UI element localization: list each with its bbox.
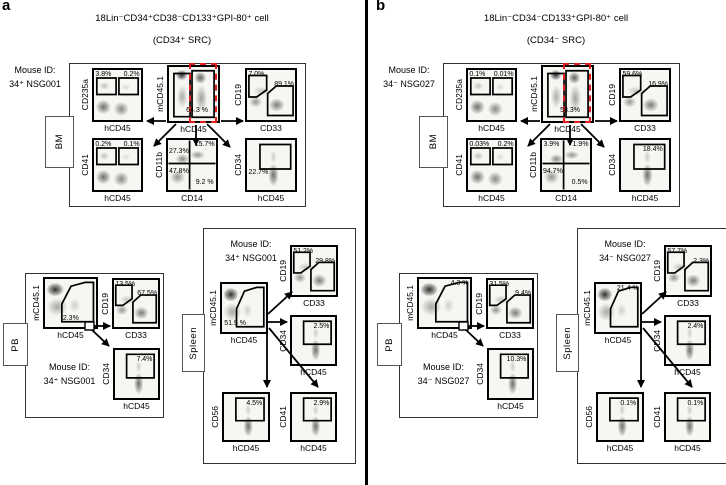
gate bbox=[436, 282, 468, 321]
x-axis-label: hCD45 bbox=[216, 443, 276, 453]
y-axis-label-text: mCD45.1 bbox=[31, 285, 41, 321]
percent-label: 7.4% bbox=[136, 356, 152, 363]
mouse-id-pb: Mouse ID:34⁺ NSG001 bbox=[31, 361, 108, 388]
y-axis-label-text: CD34 bbox=[607, 154, 617, 176]
percent-label: 58.3% bbox=[560, 107, 580, 114]
bm-section-tab: BM bbox=[419, 116, 448, 168]
figure: a18Lin⁻CD34⁺CD38⁻CD133⁺GPI-80⁺ cell(CD34… bbox=[0, 0, 726, 485]
percent-label: 9.2 % bbox=[196, 179, 214, 186]
percent-label: 15.7% bbox=[195, 141, 215, 148]
percent-label: 0.1% bbox=[124, 141, 140, 148]
percent-label: 0.1% bbox=[620, 400, 636, 407]
percent-label: 94.7% bbox=[543, 168, 563, 175]
gate-outlines bbox=[247, 140, 295, 190]
flow-plot-cd34-vs-hcd45: 18.4% bbox=[619, 138, 671, 192]
percent-label: 29.8% bbox=[315, 258, 335, 265]
flow-plot-mcd451-vs-hcd45: 58.3% bbox=[541, 65, 594, 123]
y-axis-label-text: CD11b bbox=[528, 152, 538, 178]
gate bbox=[97, 148, 116, 165]
flow-plot-cd11b-vs-cd14: 27.3%15.7%47.8%9.2 % bbox=[166, 138, 218, 192]
x-axis-label: hCD45 bbox=[658, 443, 717, 453]
percent-label: 10.3% bbox=[507, 356, 527, 363]
y-axis-label-text: CD235a bbox=[80, 79, 90, 110]
x-axis-label: hCD45 bbox=[284, 443, 343, 453]
percent-label: 0.01% bbox=[494, 71, 514, 78]
gate bbox=[642, 86, 667, 116]
percent-label: 0.2% bbox=[498, 141, 514, 148]
mouse-id-bm: Mouse ID:34⁻ NSG027 bbox=[376, 64, 442, 91]
y-axis-label: CD56 bbox=[582, 392, 595, 442]
y-axis-label-text: CD41 bbox=[80, 154, 90, 176]
percent-label: 27.3% bbox=[169, 148, 189, 155]
gate bbox=[249, 76, 267, 98]
x-axis-label: hCD45 bbox=[37, 330, 104, 340]
y-axis-label-text: CD19 bbox=[607, 84, 617, 106]
x-axis-label: hCD45 bbox=[460, 123, 523, 133]
percent-label: 67.5% bbox=[137, 290, 157, 297]
flow-plot-mcd451-vs-hcd45: 64.3 % bbox=[167, 65, 220, 123]
x-axis-label: hCD45 bbox=[535, 124, 600, 134]
gate bbox=[623, 76, 641, 98]
flow-plot-cd19-vs-cd33: 51.2%29.8% bbox=[290, 245, 338, 297]
y-axis-label: CD41 bbox=[78, 138, 91, 192]
y-axis-label-text: mCD45.1 bbox=[529, 76, 539, 112]
x-axis-label: hCD45 bbox=[588, 335, 648, 345]
gate bbox=[490, 285, 506, 305]
y-axis-label-text: CD34 bbox=[278, 330, 288, 352]
panel-b: b18Lin⁻CD34⁻CD133⁺GPI-80⁺ cell(CD34⁻ SRC… bbox=[374, 0, 726, 485]
flow-plot-cd34-vs-hcd45: 2.4% bbox=[664, 315, 711, 366]
x-axis-label: hCD45 bbox=[107, 401, 166, 411]
x-axis-label: CD33 bbox=[480, 330, 540, 340]
mouse-id-caption: Mouse ID: bbox=[2, 64, 68, 78]
y-axis-label: mCD45.1 bbox=[206, 282, 219, 334]
x-axis-label: hCD45 bbox=[481, 401, 540, 411]
flow-plot-cd41-vs-hcd45: 0.03%0.2% bbox=[466, 138, 517, 192]
percent-label: 0.03% bbox=[469, 141, 489, 148]
flow-plot-cd19-vs-cd33: 59.6%16.9% bbox=[619, 68, 671, 122]
percent-label: 2.3% bbox=[63, 315, 79, 322]
mouse-id-caption: Mouse ID: bbox=[31, 361, 108, 375]
mouse-id-caption: Mouse ID: bbox=[376, 64, 442, 78]
gate bbox=[507, 295, 530, 323]
x-axis-label: CD33 bbox=[613, 123, 677, 133]
percent-label: 59.6% bbox=[622, 71, 642, 78]
gate bbox=[119, 148, 138, 165]
percent-label: 64.3 % bbox=[186, 107, 208, 114]
percent-label: 2.5% bbox=[313, 323, 329, 330]
flow-plot-mcd451-vs-hcd45: 51.9 % bbox=[220, 282, 268, 334]
y-axis-label: mCD45.1 bbox=[580, 282, 593, 334]
percent-label: 4.5% bbox=[246, 400, 262, 407]
y-axis-label-text: CD41 bbox=[278, 406, 288, 428]
percent-label: 7.0% bbox=[248, 71, 264, 78]
flow-plot-cd19-vs-cd33: 57.7%2.3% bbox=[664, 245, 712, 297]
gate bbox=[97, 78, 116, 95]
gate bbox=[471, 148, 490, 165]
x-axis-label: hCD45 bbox=[613, 193, 677, 203]
percent-label: 47.8% bbox=[169, 168, 189, 175]
y-axis-label: CD41 bbox=[650, 392, 663, 442]
y-axis-label-text: CD34 bbox=[652, 330, 662, 352]
percent-label: 0.5% bbox=[572, 179, 588, 186]
flow-plot-mcd451-vs-hcd45: 21.4 % bbox=[594, 282, 642, 334]
red-dashed-gate bbox=[189, 63, 217, 123]
y-axis-label: CD19 bbox=[472, 278, 485, 329]
percent-label: 31.5% bbox=[489, 281, 509, 288]
panel-title: 18Lin⁻CD34⁻CD133⁺GPI-80⁺ cell bbox=[386, 13, 726, 24]
y-axis-label: mCD45.1 bbox=[403, 277, 416, 329]
gate bbox=[260, 145, 291, 170]
section-label: Spleen bbox=[562, 327, 573, 360]
x-axis-label: CD33 bbox=[284, 298, 344, 308]
gate bbox=[493, 148, 512, 165]
flow-plot-cd235a-vs-hcd45: 3.8%0.2% bbox=[92, 68, 143, 122]
percent-label: 0.2% bbox=[95, 141, 111, 148]
mouse-id-caption: Mouse ID: bbox=[586, 238, 664, 252]
y-axis-label-text: mCD45.1 bbox=[208, 290, 218, 326]
panel-subtitle: (CD34⁻ SRC) bbox=[386, 35, 726, 46]
flow-plot-mcd451-vs-hcd45: 4.3 % bbox=[417, 277, 472, 329]
pb-section-tab: PB bbox=[3, 323, 28, 366]
mouse-id-value: 34⁻ NSG027 bbox=[405, 375, 482, 389]
flow-plot-cd19-vs-cd33: 13.5%67.5% bbox=[112, 278, 160, 329]
gate bbox=[668, 252, 684, 273]
flow-plot-cd34-vs-hcd45: 10.3% bbox=[487, 348, 534, 400]
flow-plot-cd34-vs-hcd45: 22.7% bbox=[245, 138, 297, 192]
gate bbox=[493, 78, 512, 95]
gate bbox=[311, 262, 334, 290]
y-axis-label: CD235a bbox=[78, 68, 91, 122]
spleen-section-tab: Spleen bbox=[182, 314, 205, 372]
x-axis-label: hCD45 bbox=[590, 443, 650, 453]
flow-plot-cd235a-vs-hcd45: 0.1%0.01% bbox=[466, 68, 517, 122]
x-axis-label: CD33 bbox=[239, 123, 303, 133]
section-label: BM bbox=[54, 134, 65, 149]
flow-plot-cd11b-vs-cd14: 3.9%1.9%94.7%0.5% bbox=[540, 138, 592, 192]
flow-plot-cd56-vs-hcd45: 0.1% bbox=[596, 392, 644, 442]
x-axis-label: hCD45 bbox=[284, 367, 343, 377]
y-axis-label: CD56 bbox=[208, 392, 221, 442]
mouse-id-value: 34⁻ NSG027 bbox=[586, 252, 664, 266]
y-axis-label-text: CD41 bbox=[652, 406, 662, 428]
mouse-id-value: 34⁺ NSG001 bbox=[31, 375, 108, 389]
percent-label: 18.4% bbox=[643, 146, 663, 153]
y-axis-label: CD41 bbox=[452, 138, 465, 192]
mouse-id-bm: Mouse ID:34⁺ NSG001 bbox=[2, 64, 68, 91]
mouse-id-pb: Mouse ID:34⁻ NSG027 bbox=[405, 361, 482, 388]
y-axis-label: CD235a bbox=[452, 68, 465, 122]
percent-label: 2.9% bbox=[313, 400, 329, 407]
panel-letter: b bbox=[376, 0, 385, 14]
percent-label: 2.3% bbox=[693, 258, 709, 265]
x-axis-label: hCD45 bbox=[214, 335, 274, 345]
flow-plot-cd34-vs-hcd45: 2.5% bbox=[290, 315, 337, 366]
section-label: PB bbox=[10, 338, 21, 352]
y-axis-label-text: mCD45.1 bbox=[582, 290, 592, 326]
y-axis-label: CD41 bbox=[276, 392, 289, 442]
gate bbox=[119, 78, 138, 95]
percent-label: 0.2% bbox=[124, 71, 140, 78]
flow-plot-cd19-vs-cd33: 7.0%89.1% bbox=[245, 68, 297, 122]
panel-subtitle: (CD34⁺ SRC) bbox=[12, 35, 352, 46]
x-axis-label: hCD45 bbox=[658, 367, 717, 377]
section-label: BM bbox=[428, 134, 439, 149]
percent-label: 3.8% bbox=[95, 71, 111, 78]
percent-label: 89.1% bbox=[274, 81, 294, 88]
percent-label: 1.9% bbox=[573, 141, 589, 148]
flow-plot-cd41-vs-hcd45: 0.2%0.1% bbox=[92, 138, 143, 192]
flow-plot-cd34-vs-hcd45: 7.4% bbox=[113, 348, 160, 400]
x-axis-label: hCD45 bbox=[460, 193, 523, 203]
percent-label: 13.5% bbox=[115, 281, 135, 288]
y-axis-label-text: CD56 bbox=[210, 406, 220, 428]
flow-plot-cd19-vs-cd33: 31.5%9.4% bbox=[486, 278, 534, 329]
y-axis-label-text: mCD45.1 bbox=[155, 76, 165, 112]
y-axis-label-text: CD41 bbox=[454, 154, 464, 176]
percent-label: 16.9% bbox=[648, 81, 668, 88]
percent-label: 57.7% bbox=[667, 248, 687, 255]
section-label: Spleen bbox=[188, 327, 199, 360]
y-axis-label: CD11b bbox=[152, 138, 165, 192]
mouse-id-spleen: Mouse ID:34⁻ NSG027 bbox=[586, 238, 664, 265]
panel-a: a18Lin⁻CD34⁺CD38⁻CD133⁺GPI-80⁺ cell(CD34… bbox=[0, 0, 363, 485]
x-axis-label: CD33 bbox=[658, 298, 718, 308]
flow-plot-cd41-vs-hcd45: 2.9% bbox=[290, 392, 337, 442]
flow-plot-mcd451-vs-hcd45: 2.3% bbox=[43, 277, 98, 329]
y-axis-label: CD34 bbox=[605, 138, 618, 192]
mouse-id-value: 34⁺ NSG001 bbox=[2, 78, 68, 92]
y-axis-label: CD34 bbox=[231, 138, 244, 192]
red-dashed-gate bbox=[563, 63, 591, 123]
percent-label: 0.1% bbox=[469, 71, 485, 78]
x-axis-label: hCD45 bbox=[411, 330, 478, 340]
section-label: PB bbox=[384, 338, 395, 352]
percent-label: 0.1% bbox=[687, 400, 703, 407]
y-axis-label: mCD45.1 bbox=[527, 65, 540, 123]
x-axis-label: hCD45 bbox=[86, 193, 149, 203]
pb-section-tab: PB bbox=[377, 323, 402, 366]
percent-label: 3.9% bbox=[543, 141, 559, 148]
y-axis-label: CD11b bbox=[526, 138, 539, 192]
mouse-id-caption: Mouse ID: bbox=[405, 361, 482, 375]
y-axis-label-text: CD19 bbox=[233, 84, 243, 106]
flow-plot-cd56-vs-hcd45: 4.5% bbox=[222, 392, 270, 442]
bm-section-tab: BM bbox=[45, 116, 74, 168]
y-axis-label-text: CD11b bbox=[154, 152, 164, 178]
gate bbox=[294, 252, 310, 273]
percent-label: 51.2% bbox=[293, 248, 313, 255]
y-axis-label: mCD45.1 bbox=[29, 277, 42, 329]
percent-label: 21.4 % bbox=[617, 285, 639, 292]
gate bbox=[116, 285, 132, 305]
mouse-id-value: 34⁺ NSG001 bbox=[212, 252, 290, 266]
y-axis-label: CD19 bbox=[231, 68, 244, 122]
percent-label: 51.9 % bbox=[224, 320, 246, 327]
gate bbox=[471, 78, 490, 95]
y-axis-label-text: CD34 bbox=[233, 154, 243, 176]
x-axis-label: CD14 bbox=[534, 193, 598, 203]
y-axis-label: CD19 bbox=[98, 278, 111, 329]
x-axis-label: hCD45 bbox=[161, 124, 226, 134]
panel-divider bbox=[365, 0, 368, 485]
x-axis-label: hCD45 bbox=[86, 123, 149, 133]
mouse-id-value: 34⁻ NSG027 bbox=[376, 78, 442, 92]
spleen-section-tab: Spleen bbox=[556, 314, 579, 372]
percent-label: 22.7% bbox=[248, 169, 268, 176]
y-axis-label: CD19 bbox=[605, 68, 618, 122]
percent-label: 4.3 % bbox=[451, 280, 469, 287]
percent-label: 9.4% bbox=[515, 290, 531, 297]
panel-title: 18Lin⁻CD34⁺CD38⁻CD133⁺GPI-80⁺ cell bbox=[12, 13, 352, 24]
x-axis-label: CD14 bbox=[160, 193, 224, 203]
gate bbox=[133, 295, 156, 323]
y-axis-label: CD34 bbox=[650, 315, 663, 366]
y-axis-label: mCD45.1 bbox=[153, 65, 166, 123]
mouse-id-spleen: Mouse ID:34⁺ NSG001 bbox=[212, 238, 290, 265]
panel-letter: a bbox=[2, 0, 10, 14]
y-axis-label: CD34 bbox=[276, 315, 289, 366]
y-axis-label-text: CD19 bbox=[100, 293, 110, 315]
x-axis-label: hCD45 bbox=[239, 193, 303, 203]
y-axis-label-text: mCD45.1 bbox=[405, 285, 415, 321]
y-axis-label-text: CD19 bbox=[474, 293, 484, 315]
gate bbox=[685, 262, 708, 290]
mouse-id-caption: Mouse ID: bbox=[212, 238, 290, 252]
flow-plot-cd41-vs-hcd45: 0.1% bbox=[664, 392, 711, 442]
gate bbox=[268, 86, 293, 116]
x-axis-label: CD33 bbox=[106, 330, 166, 340]
y-axis-label-text: CD56 bbox=[584, 406, 594, 428]
y-axis-label-text: CD235a bbox=[454, 79, 464, 110]
percent-label: 2.4% bbox=[687, 323, 703, 330]
gate bbox=[611, 287, 638, 326]
